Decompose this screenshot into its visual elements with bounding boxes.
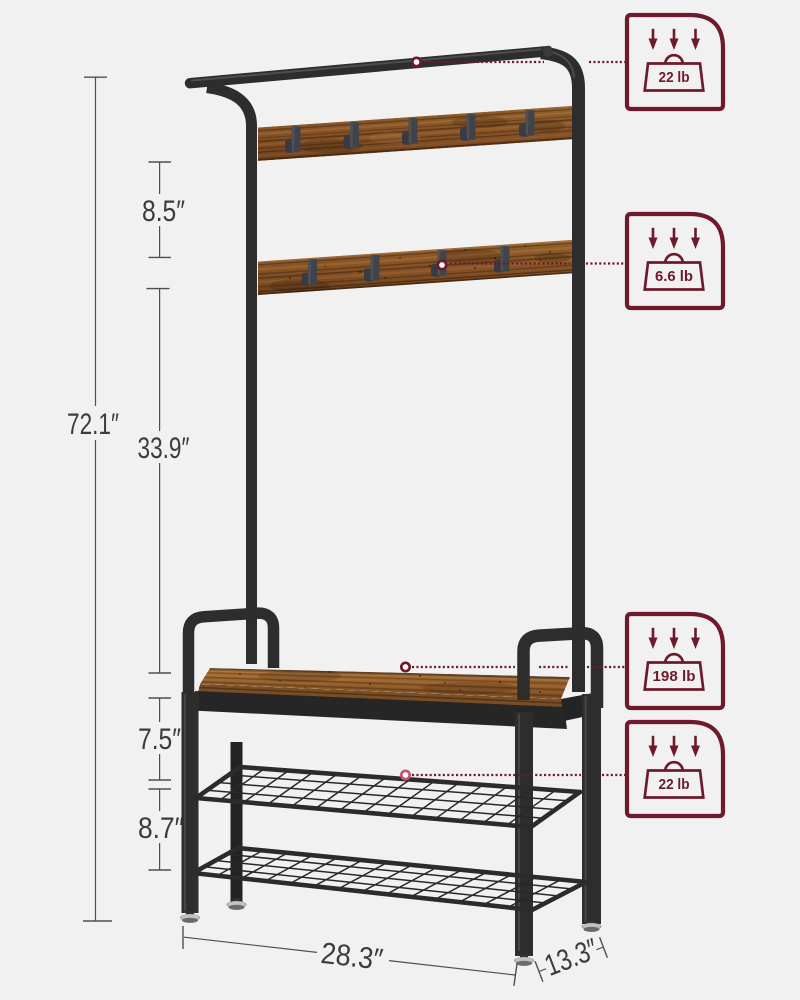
svg-text:72.1″: 72.1″ — [67, 408, 119, 441]
svg-text:28.3″: 28.3″ — [319, 937, 385, 977]
svg-text:22 lb: 22 lb — [659, 70, 690, 86]
svg-text:8.7″: 8.7″ — [138, 812, 184, 845]
svg-text:33.9″: 33.9″ — [138, 432, 190, 465]
svg-text:198 lb: 198 lb — [653, 669, 696, 685]
svg-text:7.5″: 7.5″ — [138, 723, 181, 756]
svg-text:8.5″: 8.5″ — [142, 195, 185, 228]
svg-text:22 lb: 22 lb — [659, 777, 690, 793]
svg-text:6.6 lb: 6.6 lb — [655, 269, 693, 285]
